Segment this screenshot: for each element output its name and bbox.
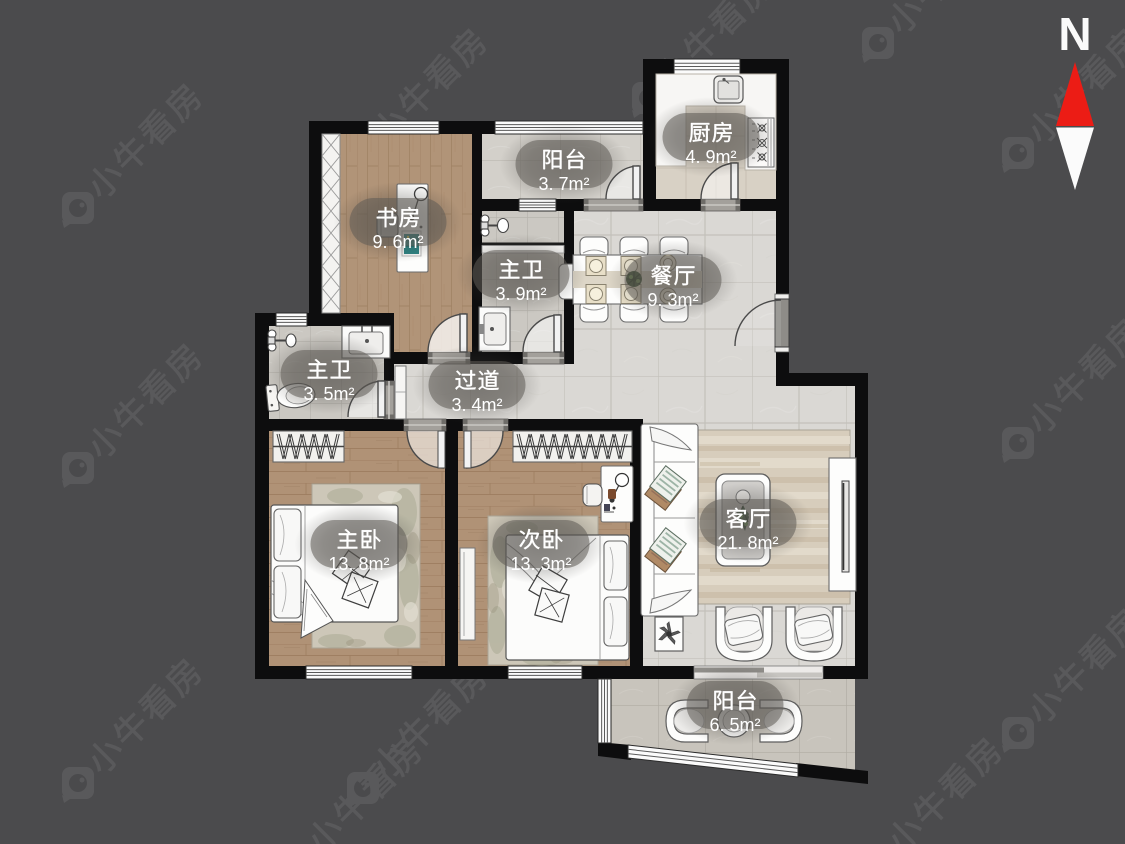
svg-text:13. 3m²: 13. 3m² bbox=[510, 554, 571, 574]
svg-text:13. 8m²: 13. 8m² bbox=[328, 554, 389, 574]
svg-text:9. 3m²: 9. 3m² bbox=[647, 290, 698, 310]
svg-text:21. 8m²: 21. 8m² bbox=[717, 533, 778, 553]
svg-text:6. 5m²: 6. 5m² bbox=[709, 715, 760, 735]
svg-text:N: N bbox=[1058, 8, 1091, 60]
svg-text:4. 9m²: 4. 9m² bbox=[685, 147, 736, 167]
svg-text:9. 6m²: 9. 6m² bbox=[372, 232, 423, 252]
svg-text:3. 9m²: 3. 9m² bbox=[495, 284, 546, 304]
svg-text:3. 4m²: 3. 4m² bbox=[451, 395, 502, 415]
svg-text:3. 7m²: 3. 7m² bbox=[538, 174, 589, 194]
svg-text:3. 5m²: 3. 5m² bbox=[303, 384, 354, 404]
